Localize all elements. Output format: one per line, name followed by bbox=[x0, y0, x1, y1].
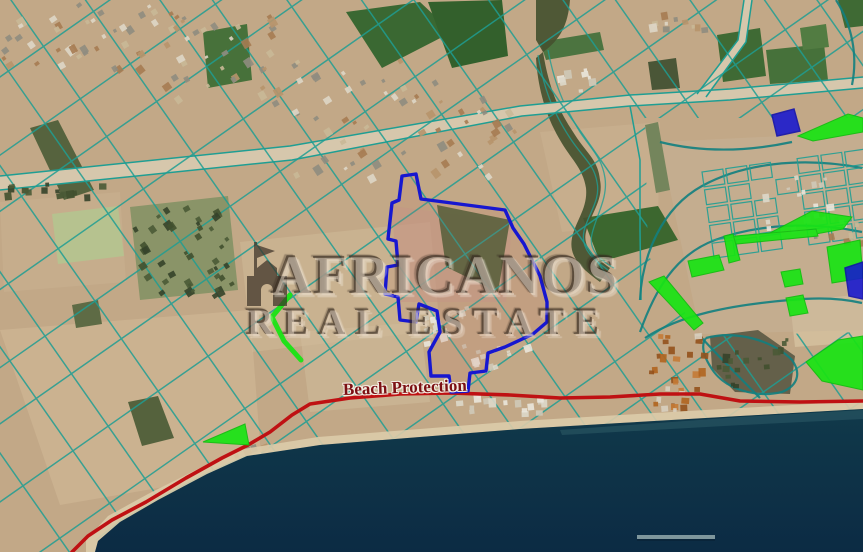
satellite-map bbox=[0, 0, 863, 552]
map-viewport[interactable]: AFRICANOS REAL ESTATE Beach Protection bbox=[0, 0, 863, 552]
